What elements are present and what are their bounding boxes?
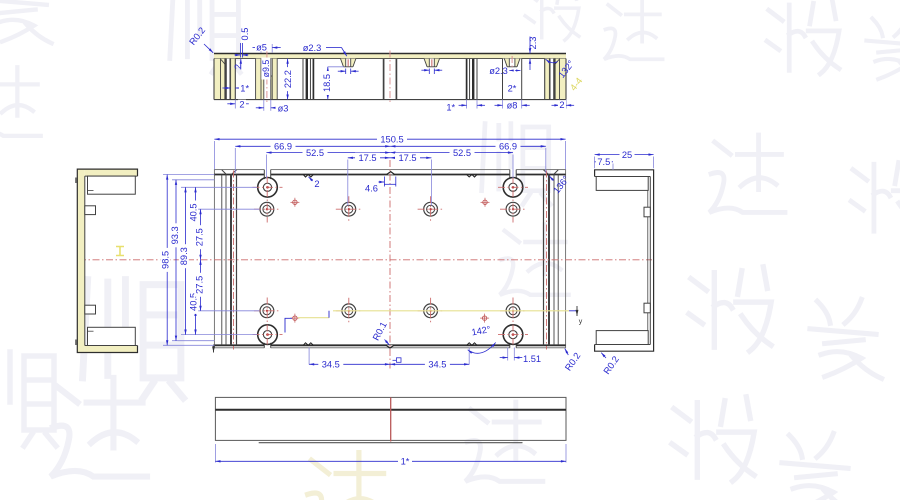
- svg-text:52.5: 52.5: [453, 148, 471, 158]
- svg-text:52.5: 52.5: [306, 148, 324, 158]
- svg-text:R0.2: R0.2: [602, 354, 621, 376]
- svg-text:2.3: 2.3: [528, 37, 538, 50]
- svg-text:25: 25: [622, 150, 632, 160]
- svg-text:4.6: 4.6: [365, 183, 378, 193]
- svg-text:ø8: ø8: [507, 100, 518, 110]
- svg-text:66.9: 66.9: [499, 142, 517, 152]
- svg-text:ø9.5: ø9.5: [261, 60, 271, 78]
- svg-text:ø2.3: ø2.3: [489, 66, 508, 76]
- svg-text:1*: 1*: [446, 102, 455, 112]
- svg-text:y: y: [579, 319, 583, 326]
- svg-text:R0.1: R0.1: [371, 320, 389, 342]
- svg-text:1.51: 1.51: [523, 354, 541, 364]
- svg-text:150.5: 150.5: [380, 135, 403, 145]
- svg-text:2: 2: [239, 100, 244, 110]
- svg-text:17.5: 17.5: [398, 153, 416, 163]
- svg-text:89.3: 89.3: [179, 247, 189, 265]
- svg-text:142°: 142°: [471, 324, 492, 337]
- svg-text:27.5: 27.5: [195, 276, 205, 294]
- svg-text:0.5: 0.5: [240, 28, 250, 41]
- svg-text:34.5: 34.5: [322, 360, 340, 370]
- svg-text:18.5: 18.5: [322, 74, 332, 92]
- svg-text:2: 2: [233, 64, 243, 69]
- svg-text:2: 2: [314, 179, 319, 189]
- svg-text:40.5: 40.5: [189, 203, 199, 221]
- svg-text:22.2: 22.2: [283, 70, 293, 88]
- svg-text:ø3: ø3: [278, 103, 289, 113]
- svg-text:2*: 2*: [508, 83, 517, 93]
- svg-text:1*: 1*: [240, 84, 249, 94]
- svg-text:27.5: 27.5: [195, 228, 205, 246]
- svg-text:7.5: 7.5: [597, 157, 610, 167]
- svg-text:93.3: 93.3: [170, 226, 180, 244]
- svg-text:ø2.3: ø2.3: [303, 43, 322, 53]
- svg-text:4-4: 4-4: [568, 76, 585, 94]
- svg-text:ø5: ø5: [256, 43, 267, 53]
- svg-text:R0.2: R0.2: [563, 351, 582, 373]
- svg-text:17.5: 17.5: [358, 153, 376, 163]
- svg-text:34.5: 34.5: [428, 360, 446, 370]
- svg-text:66.9: 66.9: [274, 142, 292, 152]
- svg-text:98.5: 98.5: [161, 251, 171, 269]
- svg-text:1*: 1*: [401, 457, 410, 467]
- svg-text:2: 2: [559, 100, 564, 110]
